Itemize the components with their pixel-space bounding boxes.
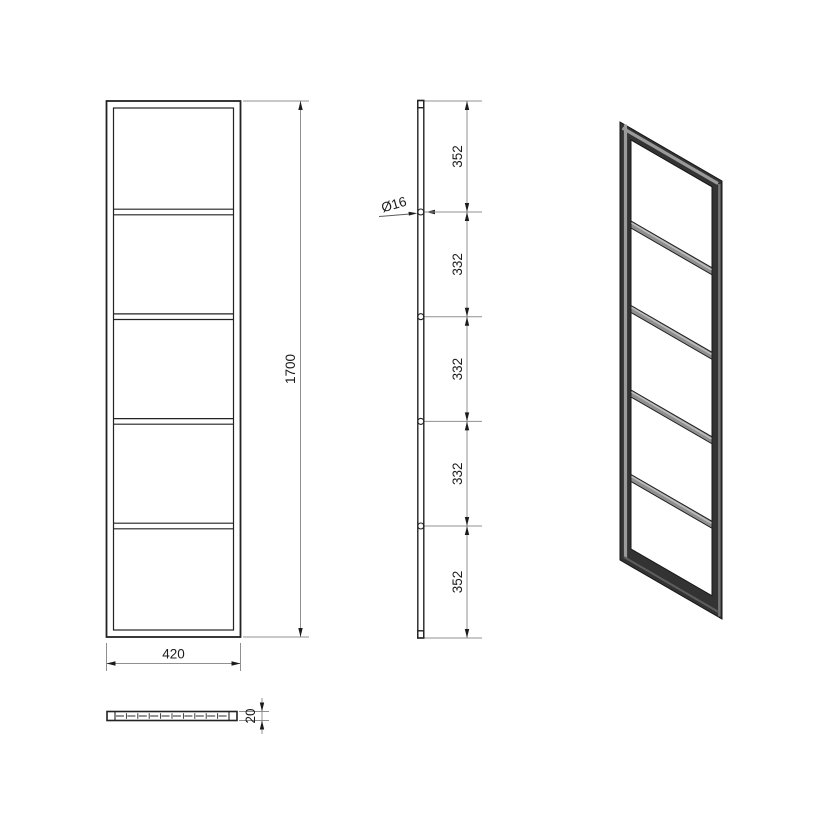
side-diameter-label: Ø16 xyxy=(380,194,409,215)
side-segment-dim-label-1: 352 xyxy=(450,145,465,168)
front-height-dimension: 1700 xyxy=(243,101,309,637)
front-width-dim-label: 420 xyxy=(162,647,185,662)
iso-frame-body xyxy=(620,122,722,619)
iso-bottom-tube-highlight xyxy=(624,557,719,612)
bottom-thickness-dim-label: 20 xyxy=(243,708,258,723)
arrowhead-left-icon xyxy=(107,661,116,665)
side-segment-dim-label-5: 352 xyxy=(450,571,465,594)
iso-rung-4 xyxy=(631,475,712,529)
arrowhead-down-icon xyxy=(260,703,264,712)
front-rung-2 xyxy=(114,314,234,320)
front-width-dimension: 420 xyxy=(107,643,241,671)
side-profile-bar xyxy=(418,101,424,639)
leader-arrowhead-icon xyxy=(409,212,418,216)
iso-top-tube-highlight xyxy=(623,128,719,184)
bottom-view xyxy=(107,712,237,721)
front-view xyxy=(107,101,241,637)
front-rung-3 xyxy=(114,419,234,425)
arrowhead-down-icon xyxy=(298,628,302,637)
iso-rung-2 xyxy=(631,306,712,360)
front-rung-4 xyxy=(114,523,234,529)
side-rung-end-2 xyxy=(418,314,424,320)
arrowhead-up-icon xyxy=(298,101,302,110)
arrowhead-right-icon xyxy=(232,661,241,665)
side-segment-dimensions: 352 332 332 332 352 xyxy=(425,101,483,638)
side-segment-dim-label-3: 332 xyxy=(450,358,465,381)
side-rung-end-4 xyxy=(418,523,424,529)
arrowhead-up-icon xyxy=(260,721,264,730)
side-view xyxy=(418,101,424,639)
side-segment-dim-label-4: 332 xyxy=(450,462,465,485)
technical-drawing-page: 1700 420 Ø16 xyxy=(0,0,830,830)
front-outer-frame xyxy=(107,101,241,637)
side-bottom-tube-section xyxy=(418,631,424,638)
isometric-view xyxy=(620,122,722,619)
side-top-tube-section xyxy=(418,101,424,108)
side-segment-dim-label-2: 332 xyxy=(450,253,465,276)
front-rung-1 xyxy=(114,209,234,215)
iso-rung-1 xyxy=(631,221,712,275)
front-inner-frame xyxy=(114,108,234,630)
technical-drawing-canvas: 1700 420 Ø16 xyxy=(0,0,830,830)
side-diameter-callout: Ø16 xyxy=(379,194,435,217)
iso-rung-3 xyxy=(631,390,712,444)
front-height-dim-label: 1700 xyxy=(283,354,298,384)
side-rung-end-1 xyxy=(418,209,424,215)
side-rung-end-3 xyxy=(418,418,424,424)
bottom-thickness-dimension: 20 xyxy=(239,698,269,734)
